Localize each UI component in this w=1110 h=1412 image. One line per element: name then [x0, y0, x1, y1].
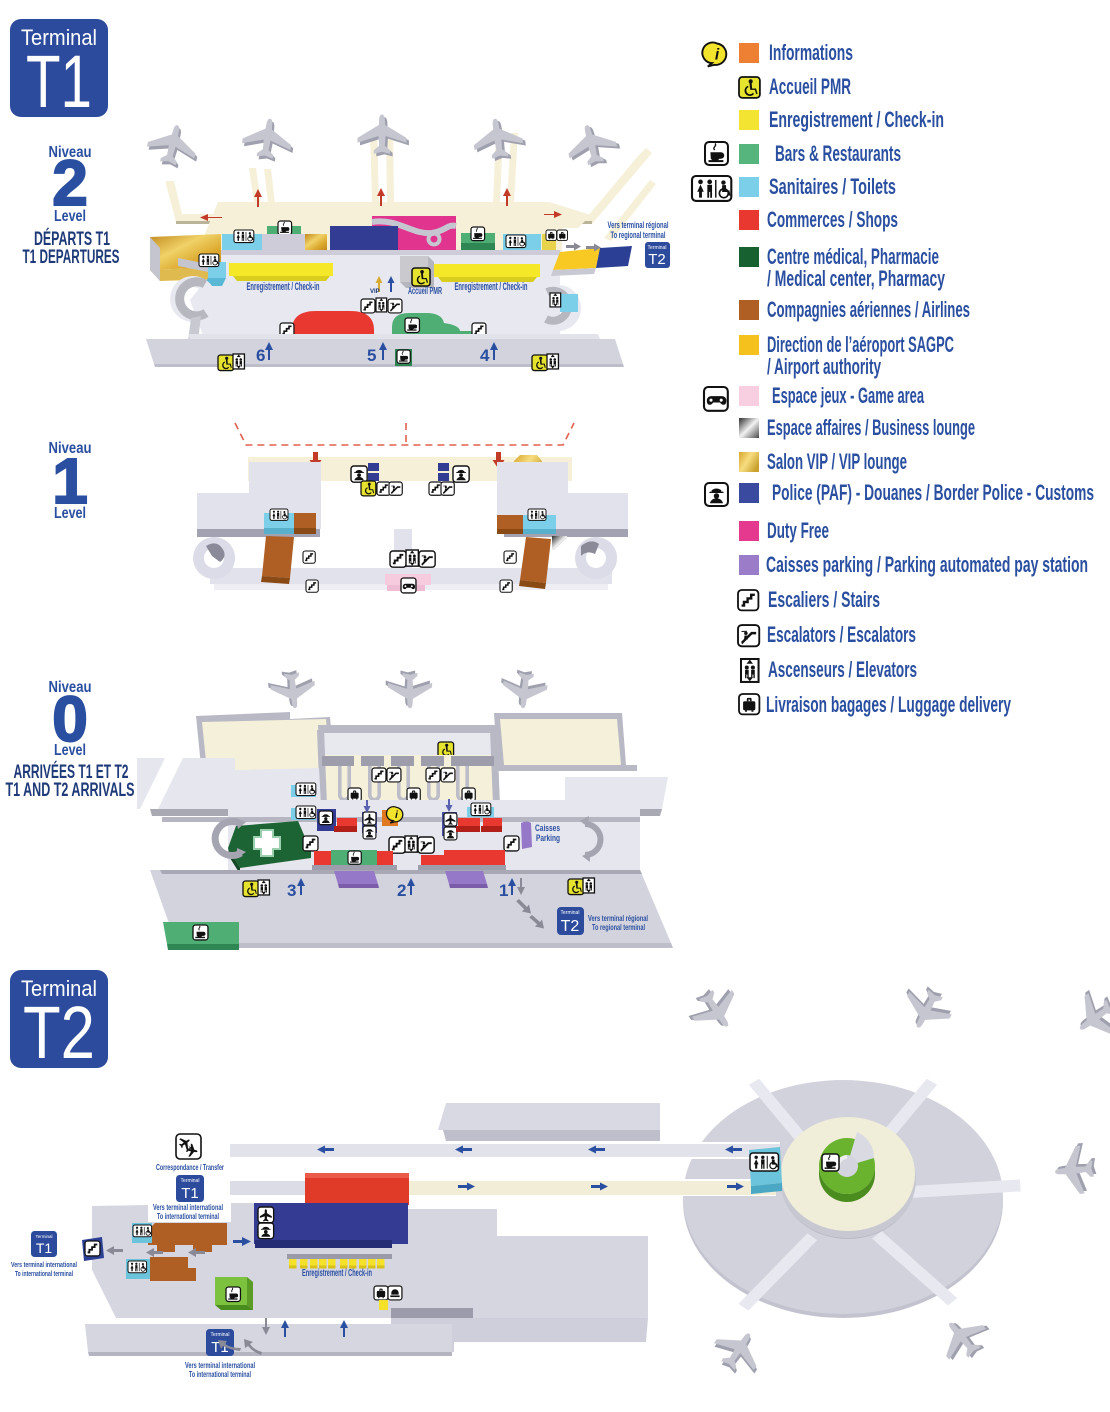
svg-text:Vers terminal régional: Vers terminal régional	[608, 220, 669, 230]
svg-text:T2: T2	[648, 251, 666, 268]
svg-text:/ Medical center, Pharmacy: / Medical center, Pharmacy	[767, 266, 945, 291]
svg-text:T1: T1	[26, 40, 92, 123]
svg-text:To international terminal: To international terminal	[189, 1370, 251, 1379]
svg-text:To international terminal: To international terminal	[15, 1269, 73, 1278]
svg-text:Vers terminal international: Vers terminal international	[11, 1260, 77, 1269]
svg-text:Duty Free: Duty Free	[767, 518, 829, 543]
svg-text:Level: Level	[54, 208, 86, 225]
svg-text:T1: T1	[36, 1240, 53, 1256]
svg-text:Accueil PMR: Accueil PMR	[408, 286, 442, 297]
svg-text:To regional terminal: To regional terminal	[592, 922, 645, 932]
svg-text:6: 6	[256, 346, 265, 365]
svg-text:Sanitaires / Toilets: Sanitaires / Toilets	[769, 174, 896, 199]
svg-text:Compagnies aériennes / Airline: Compagnies aériennes / Airlines	[767, 297, 970, 322]
svg-text:Terminal: Terminal	[181, 1178, 200, 1184]
svg-text:Police (PAF) - Douanes / Borde: Police (PAF) - Douanes / Border Police -…	[772, 480, 1094, 505]
svg-text:Espace affaires / Business lou: Espace affaires / Business lounge	[767, 415, 975, 440]
svg-text:Salon VIP / VIP lounge: Salon VIP / VIP lounge	[767, 449, 907, 474]
svg-text:T2: T2	[23, 991, 95, 1074]
svg-text:T2: T2	[561, 918, 580, 935]
svg-text:3: 3	[287, 881, 296, 900]
svg-text:4: 4	[480, 346, 490, 365]
svg-text:Level: Level	[54, 742, 86, 759]
svg-text:2: 2	[397, 881, 406, 900]
svg-text:Bars & Restaurants: Bars & Restaurants	[775, 141, 901, 166]
svg-text:To regional terminal: To regional terminal	[611, 230, 666, 240]
svg-text:Accueil PMR: Accueil PMR	[769, 74, 851, 99]
svg-text:Livraison bagages / Luggage de: Livraison bagages / Luggage delivery	[766, 692, 1011, 717]
svg-text:Enregistrement / Check-in: Enregistrement / Check-in	[769, 107, 944, 132]
svg-text:Caisses parking / Parking auto: Caisses parking / Parking automated pay …	[766, 552, 1088, 577]
svg-text:Commerces / Shops: Commerces / Shops	[767, 207, 898, 232]
svg-text:Enregistrement / Check-in: Enregistrement / Check-in	[455, 281, 528, 293]
svg-text:Terminal: Terminal	[561, 910, 580, 916]
svg-text:Ascenseurs / Elevators: Ascenseurs / Elevators	[768, 657, 917, 682]
svg-text:Terminal: Terminal	[211, 1332, 230, 1338]
svg-text:1: 1	[499, 881, 508, 900]
svg-text:VIP: VIP	[370, 289, 380, 295]
svg-text:Escalators / Escalators: Escalators / Escalators	[767, 622, 916, 647]
svg-text:Informations: Informations	[769, 40, 853, 65]
svg-text:T1: T1	[181, 1185, 199, 1202]
svg-text:Escaliers / Stairs: Escaliers / Stairs	[768, 587, 880, 612]
svg-text:Enregistrement / Check-in: Enregistrement / Check-in	[247, 281, 320, 293]
svg-text:Parking: Parking	[536, 833, 560, 844]
svg-text:T1 AND T2 ARRIVALS: T1 AND T2 ARRIVALS	[6, 780, 135, 801]
svg-text:Enregistrement / Check-in: Enregistrement / Check-in	[302, 1268, 372, 1279]
svg-text:/ Airport authority: / Airport authority	[767, 354, 881, 379]
svg-text:Vers terminal international: Vers terminal international	[185, 1361, 255, 1370]
svg-text:Vers terminal international: Vers terminal international	[153, 1203, 223, 1212]
svg-text:To international terminal: To international terminal	[157, 1212, 219, 1221]
svg-text:5: 5	[367, 346, 376, 365]
svg-text:Espace jeux - Game area: Espace jeux - Game area	[772, 383, 924, 408]
svg-text:Level: Level	[54, 505, 86, 522]
svg-text:Terminal: Terminal	[35, 1234, 52, 1239]
svg-text:Correspondance / Transfer: Correspondance / Transfer	[156, 1163, 224, 1172]
svg-text:T1 DEPARTURES: T1 DEPARTURES	[23, 247, 120, 268]
